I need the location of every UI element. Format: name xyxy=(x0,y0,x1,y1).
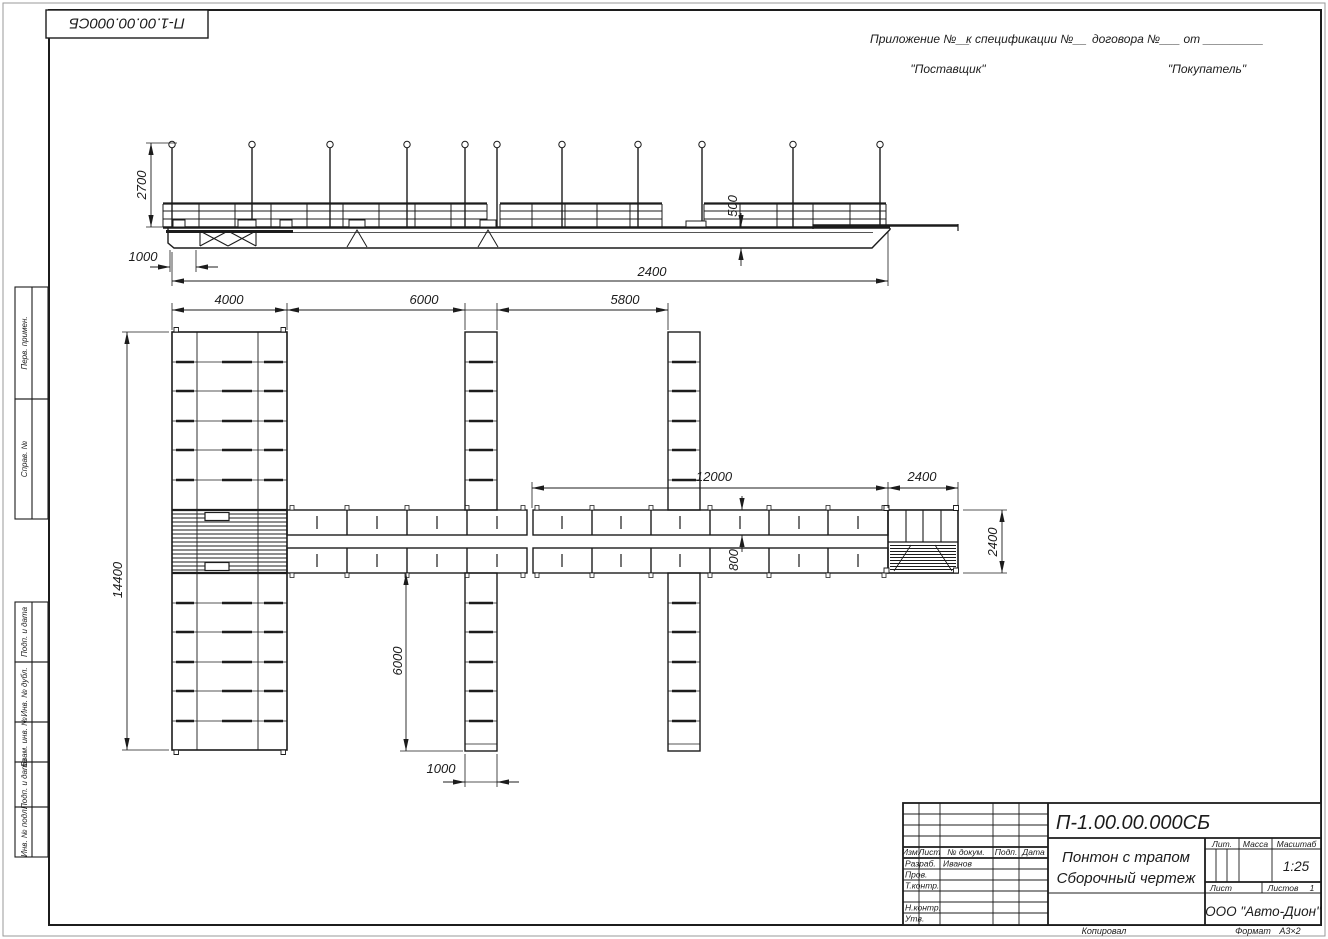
dim-label-500: 500 xyxy=(725,194,740,216)
deck-pads xyxy=(173,220,292,227)
title-name-line2: Сборочный чертеж xyxy=(1057,870,1196,887)
margin-label-podp-data-1: Подп. и дата xyxy=(20,606,29,657)
scissor-brace xyxy=(200,231,256,246)
row-label-nkontr: Н.контр. xyxy=(905,903,941,913)
finger-division-lines xyxy=(465,362,700,744)
left-margin-labels: Перв. примен. Справ. № Подп. и дата Инв.… xyxy=(20,316,29,856)
buyer-label: "Покупатель" xyxy=(1168,62,1247,76)
walkway-joints xyxy=(347,510,828,573)
walkway-cleats xyxy=(317,516,858,567)
row-label-prov: Пров. xyxy=(905,870,927,880)
posts xyxy=(172,148,880,227)
dim-label-6000-lower: 6000 xyxy=(390,646,405,676)
contract-line-part3: договора №___ от _________ xyxy=(1092,32,1264,46)
margin-label-inv-dubl: Инв. № дубл. xyxy=(20,667,29,716)
col-label-izm: Изм. xyxy=(902,847,920,857)
col-label-data: Дата xyxy=(1021,847,1045,857)
supplier-label: "Поставщик" xyxy=(910,62,986,76)
platform-corner-lugs xyxy=(884,506,959,574)
block-division-lines xyxy=(172,362,287,721)
cell-label-lit: Лит. xyxy=(1211,839,1232,849)
corner-stamp-text: П-1.00.00.000СБ xyxy=(69,15,185,32)
cell-label-massa: Масса xyxy=(1243,839,1268,849)
corner-stamp: П-1.00.00.000СБ xyxy=(46,10,208,38)
format-label: Формат xyxy=(1235,926,1271,936)
dim-label-4000: 4000 xyxy=(215,292,245,307)
finger-piers xyxy=(465,332,700,751)
title-name-line1: Понтон с трапом xyxy=(1062,849,1190,866)
drawing-frame xyxy=(49,10,1321,925)
dim-label-2700: 2700 xyxy=(134,170,149,201)
sheets-value: 1 xyxy=(1310,883,1315,893)
cell-label-listov: Листов xyxy=(1267,883,1300,893)
footer-strip: Копировал Формат А3×2 xyxy=(1082,926,1301,936)
plan-view: 4000 6000 5800 12000 2400 2400 14400 800 xyxy=(110,292,1007,787)
col-label-list: Лист xyxy=(918,847,941,857)
drawing-canvas: П-1.00.00.000СБ Перв. примен. Справ. № П… xyxy=(0,0,1328,939)
margin-label-sprav: Справ. № xyxy=(20,440,29,477)
dim-label-1000-elev: 1000 xyxy=(129,249,159,264)
dim-label-2400-elev: 2400 xyxy=(637,264,668,279)
big-pontoon-block xyxy=(172,328,287,755)
margin-label-inv-podl: Инв. № подл. xyxy=(20,807,29,857)
contract-line-part1: Приложение №__ xyxy=(870,32,970,46)
margin-label-perv-primen: Перв. примен. xyxy=(20,316,29,369)
format-value: А3×2 xyxy=(1278,926,1300,936)
walkway xyxy=(287,506,888,578)
paper-edge xyxy=(3,3,1325,936)
cell-label-masshtab: Масштаб xyxy=(1277,839,1318,849)
cell-label-list2: Лист xyxy=(1209,883,1232,893)
walkway-lugs xyxy=(290,506,886,578)
block-ramp-hatch xyxy=(173,514,287,570)
finger-connector-bars xyxy=(469,362,696,721)
elevation-dimensions: 2700 1000 2400 500 xyxy=(129,143,888,286)
row-label-tkontr: Т.контр. xyxy=(905,881,939,891)
dim-label-5800: 5800 xyxy=(611,292,641,307)
dim-label-2400-platform-w: 2400 xyxy=(907,469,938,484)
drawing-sheet: П-1.00.00.000СБ Перв. примен. Справ. № П… xyxy=(0,0,1328,939)
dim-label-2400-platform-d: 2400 xyxy=(985,527,1000,558)
plan-dimensions: 4000 6000 5800 12000 2400 2400 14400 800 xyxy=(110,292,1007,787)
col-label-ndoc: № докум. xyxy=(947,847,984,857)
elevation-view: 2700 1000 2400 500 xyxy=(129,141,958,286)
row-label-razrab: Разраб. xyxy=(905,859,936,869)
title-company: ООО "Авто-Дион" xyxy=(1205,904,1322,919)
dim-label-800: 800 xyxy=(726,548,741,570)
platform-ramp-hatch xyxy=(890,545,956,571)
dim-label-14400: 14400 xyxy=(110,561,125,598)
block-connector-bars xyxy=(176,362,283,721)
railing-balusters xyxy=(163,204,886,227)
dim-label-6000-top: 6000 xyxy=(410,292,440,307)
title-block: П-1.00.00.000СБ Понтон с трапом Сборочны… xyxy=(902,803,1322,925)
title-scale-value: 1:25 xyxy=(1283,859,1310,874)
kopiroval-label: Копировал xyxy=(1082,926,1127,936)
contract-line-part2: к спецификации №__ xyxy=(966,32,1087,46)
deck-tabs xyxy=(349,220,706,227)
dim-label-1000-lower: 1000 xyxy=(427,761,457,776)
title-doc-number: П-1.00.00.000СБ xyxy=(1056,812,1210,834)
margin-label-podp-data-2: Подп. и дата xyxy=(20,758,29,809)
col-label-podp: Подп. xyxy=(995,847,1018,857)
post-caps xyxy=(169,141,883,147)
dim-label-12000: 12000 xyxy=(696,469,733,484)
contract-header: Приложение №__ к спецификации №__ догово… xyxy=(870,32,1264,76)
row-label-utv: Утв. xyxy=(904,914,924,924)
developer-name: Иванов xyxy=(943,859,972,869)
landing-platform xyxy=(884,506,959,574)
